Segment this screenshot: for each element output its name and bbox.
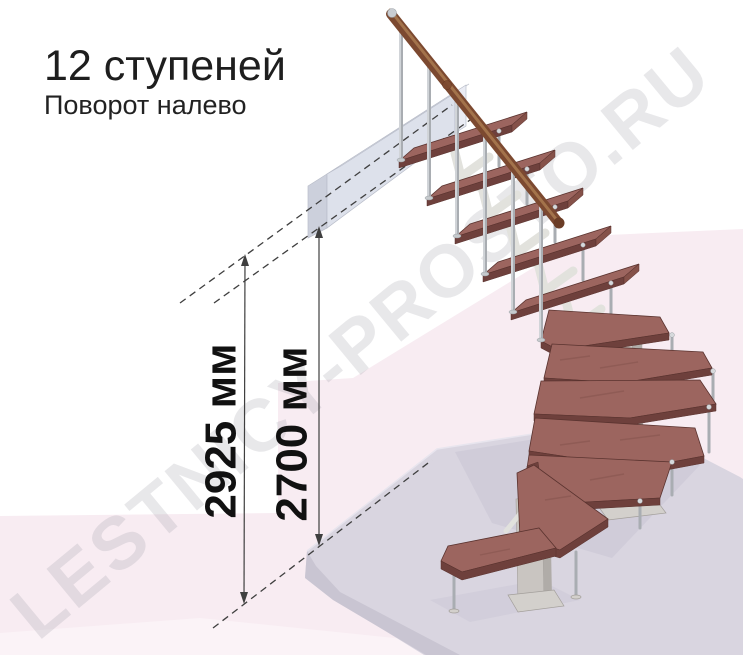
- leg-foot: [571, 595, 581, 599]
- baluster-collar: [425, 196, 433, 200]
- baluster-collar: [397, 158, 405, 162]
- joint: [525, 167, 529, 171]
- baluster-collar: [537, 338, 545, 342]
- joint: [707, 405, 712, 410]
- joint: [638, 499, 643, 504]
- dimension-label-floor-height: 2700 мм: [268, 346, 317, 521]
- handrail-end-cap: [554, 218, 565, 229]
- page-subtitle: Поворот налево: [44, 90, 247, 120]
- joint: [609, 281, 613, 285]
- handrail-top-cap: [388, 9, 397, 18]
- joint: [670, 333, 675, 338]
- baluster-collar: [481, 272, 489, 276]
- baluster-collar: [509, 310, 517, 314]
- leg-foot: [449, 609, 459, 613]
- joint: [711, 369, 716, 374]
- staircase-diagram: LESTNICY-PROSTO.RU: [0, 0, 743, 655]
- staircase-diagram-page: LESTNICY-PROSTO.RU: [0, 0, 743, 655]
- joint: [670, 460, 675, 465]
- joint: [581, 243, 585, 247]
- dimension-label-total-height: 2925 мм: [197, 343, 246, 518]
- joint: [497, 129, 501, 133]
- page-title: 12 ступеней: [44, 42, 286, 90]
- baluster-collar: [453, 234, 461, 238]
- handrail-joint: [443, 81, 452, 90]
